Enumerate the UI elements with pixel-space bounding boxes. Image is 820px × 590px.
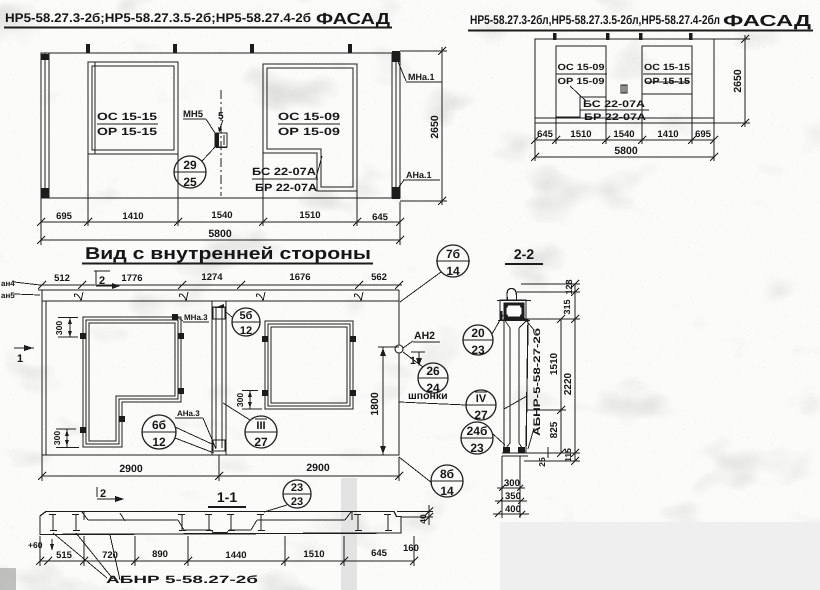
svg-text:300: 300: [52, 431, 62, 445]
svg-text:29: 29: [183, 158, 197, 172]
svg-text:ОР 15-09: ОР 15-09: [558, 76, 605, 86]
svg-text:1540: 1540: [211, 210, 232, 221]
svg-text:350: 350: [505, 491, 521, 502]
svg-text:ОС 15-15: ОС 15-15: [644, 62, 690, 72]
svg-text:ФАСАД: ФАСАД: [723, 13, 812, 30]
svg-text:23: 23: [291, 496, 303, 508]
svg-text:300: 300: [504, 478, 520, 489]
svg-text:26: 26: [426, 364, 440, 378]
svg-text:645: 645: [537, 129, 554, 140]
svg-text:НР5-58.27.3-2бл,НР5-58.27.3.5-: НР5-58.27.3-2бл,НР5-58.27.3.5-2бл,НР5-58…: [470, 13, 720, 27]
svg-text:1800: 1800: [369, 392, 381, 416]
svg-text:14: 14: [446, 264, 460, 278]
svg-text:БР 22-07А: БР 22-07А: [584, 112, 646, 123]
svg-text:24б: 24б: [467, 424, 488, 438]
svg-text:25: 25: [183, 175, 197, 189]
svg-text:14: 14: [440, 484, 454, 498]
svg-text:1440: 1440: [225, 550, 246, 561]
svg-text:АН2: АН2: [414, 330, 435, 342]
svg-text:5б: 5б: [240, 310, 253, 322]
svg-text:ОС 15-15: ОС 15-15: [97, 111, 157, 123]
svg-text:7б: 7б: [446, 247, 460, 261]
svg-text:АНа.1: АНа.1: [406, 170, 432, 180]
svg-text:III: III: [256, 420, 265, 432]
svg-text:695: 695: [695, 129, 712, 140]
svg-text:IV: IV: [476, 393, 487, 405]
svg-text:25: 25: [537, 457, 547, 467]
svg-text:ан4: ан4: [1, 279, 15, 288]
svg-text:400: 400: [505, 504, 521, 515]
svg-text:2-2: 2-2: [514, 246, 534, 262]
svg-text:ОР 15-09: ОР 15-09: [278, 126, 340, 138]
svg-text:АНа.3: АНа.3: [177, 409, 200, 418]
svg-text:1776: 1776: [121, 273, 142, 284]
svg-text:ОС 15-09: ОС 15-09: [558, 62, 605, 72]
svg-text:1510: 1510: [570, 129, 591, 140]
svg-text:шпонки: шпонки: [408, 390, 448, 402]
svg-text:МНа.1: МНа.1: [408, 72, 435, 82]
svg-text:НР5-58.27.3-2б;НР5-58.27.3.5-2: НР5-58.27.3-2б;НР5-58.27.3.5-2б;НР5-58.2…: [5, 11, 311, 25]
svg-text:1676: 1676: [289, 272, 310, 283]
svg-text:23: 23: [291, 482, 303, 494]
svg-text:1274: 1274: [201, 272, 223, 283]
svg-text:2220: 2220: [563, 372, 574, 395]
svg-text:ОР 15-15: ОР 15-15: [97, 126, 157, 138]
svg-text:40: 40: [418, 514, 428, 524]
svg-text:23: 23: [471, 343, 485, 357]
svg-text:2650: 2650: [429, 115, 441, 139]
svg-text:МНа.3: МНа.3: [184, 313, 208, 322]
svg-text:8б: 8б: [440, 467, 454, 481]
svg-text:512: 512: [54, 273, 70, 284]
svg-text:5800: 5800: [614, 145, 638, 157]
svg-text:1-1: 1-1: [217, 489, 237, 505]
svg-text:6б: 6б: [152, 418, 166, 432]
svg-text:БС 22-07А: БС 22-07А: [583, 99, 645, 110]
svg-text:562: 562: [371, 272, 387, 283]
svg-text:1510: 1510: [299, 210, 320, 221]
svg-text:1: 1: [17, 353, 23, 365]
svg-text:2900: 2900: [306, 462, 330, 474]
svg-text:ФАСАД: ФАСАД: [316, 11, 391, 28]
svg-text:645: 645: [371, 548, 388, 559]
svg-text:1410: 1410: [657, 129, 678, 140]
svg-text:315: 315: [562, 299, 572, 314]
svg-text:1510: 1510: [549, 352, 560, 375]
svg-text:БР 22-07А: БР 22-07А: [255, 182, 317, 194]
svg-text:1540: 1540: [613, 129, 634, 140]
svg-text:1410: 1410: [122, 211, 143, 222]
svg-text:300: 300: [54, 321, 64, 335]
svg-text:ОС 15-09: ОС 15-09: [278, 111, 340, 123]
svg-text:20: 20: [471, 326, 485, 340]
svg-text:128: 128: [564, 279, 574, 294]
svg-text:+60: +60: [28, 540, 43, 550]
svg-text:23: 23: [470, 441, 484, 455]
svg-text:АБНР 5-58.27-2б: АБНР 5-58.27-2б: [106, 574, 259, 586]
svg-text:2650: 2650: [732, 69, 744, 93]
svg-text:27: 27: [254, 435, 268, 449]
svg-text:515: 515: [56, 550, 73, 561]
svg-text:160: 160: [403, 543, 419, 554]
svg-text:115: 115: [563, 448, 573, 462]
svg-text:890: 890: [152, 549, 168, 560]
svg-text:2900: 2900: [119, 463, 143, 475]
svg-text:ОР 15-15: ОР 15-15: [644, 76, 690, 86]
svg-text:1510: 1510: [303, 549, 324, 560]
svg-text:2: 2: [100, 488, 106, 500]
svg-text:645: 645: [372, 212, 389, 223]
svg-text:27: 27: [474, 408, 488, 422]
svg-text:695: 695: [56, 211, 73, 222]
svg-text:БС 22-07А: БС 22-07А: [252, 166, 316, 178]
svg-text:АБНР-5-58-27-2б: АБНР-5-58-27-2б: [532, 328, 543, 436]
svg-text:МН5: МН5: [183, 109, 204, 120]
svg-text:12: 12: [152, 435, 166, 449]
svg-text:2: 2: [99, 275, 105, 287]
svg-text:Вид с внутренней стороны: Вид с внутренней стороны: [85, 244, 371, 263]
svg-text:ан5: ан5: [1, 291, 15, 300]
svg-text:12: 12: [240, 325, 252, 337]
svg-text:825: 825: [549, 421, 560, 438]
svg-text:5800: 5800: [208, 228, 232, 240]
svg-text:300: 300: [235, 393, 245, 407]
